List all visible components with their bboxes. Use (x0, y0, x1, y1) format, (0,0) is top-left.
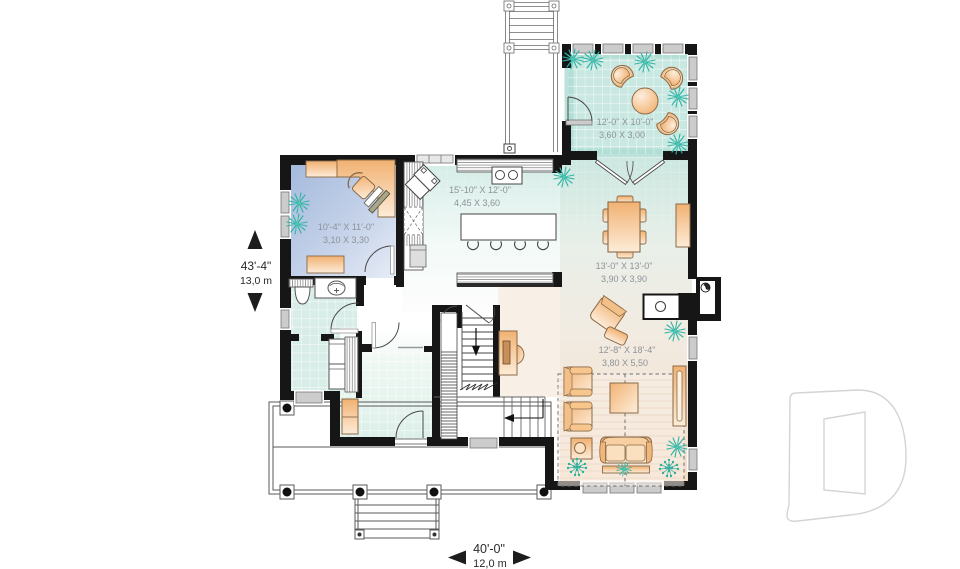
svg-text:12'-0" X 10'-0": 12'-0" X 10'-0" (597, 117, 654, 127)
svg-text:12,0 m: 12,0 m (473, 558, 507, 569)
svg-text:40'-0": 40'-0" (473, 542, 505, 556)
svg-text:4,45 X 3,60: 4,45 X 3,60 (454, 198, 500, 208)
svg-text:10'-4" X 11'-0": 10'-4" X 11'-0" (318, 222, 374, 232)
svg-text:3,90 X 3,90: 3,90 X 3,90 (601, 274, 647, 284)
svg-text:3,80 X 5,50: 3,80 X 5,50 (602, 358, 648, 368)
svg-text:3,60 X 3,00: 3,60 X 3,00 (599, 130, 645, 140)
svg-text:13'-0" X 13'-0": 13'-0" X 13'-0" (596, 261, 653, 271)
svg-text:15'-10" X 12'-0": 15'-10" X 12'-0" (449, 185, 511, 195)
svg-text:43'-4": 43'-4" (241, 259, 272, 273)
svg-text:3,10 X 3,30: 3,10 X 3,30 (323, 235, 369, 245)
svg-text:13,0 m: 13,0 m (240, 275, 272, 287)
svg-text:12'-8" X 18'-4": 12'-8" X 18'-4" (599, 345, 656, 355)
